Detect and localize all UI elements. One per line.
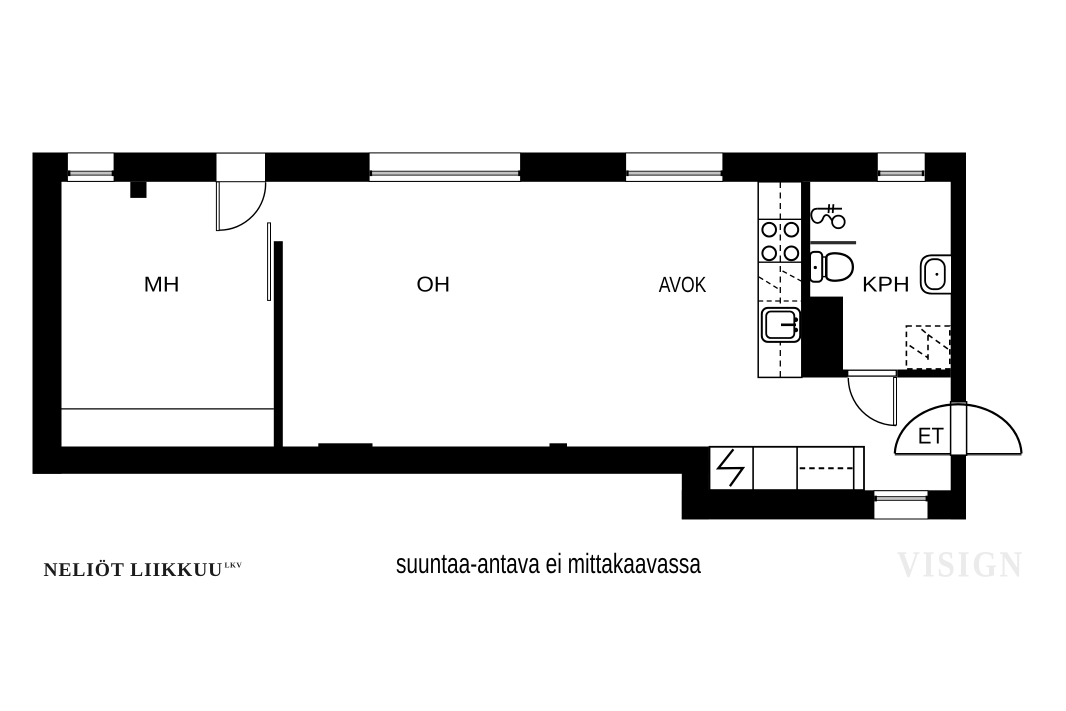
svg-text:OH: OH [416, 273, 450, 297]
svg-text:LKV: LKV [225, 561, 243, 570]
svg-text:AVOK: AVOK [659, 272, 707, 297]
svg-text:NELIÖT LIIKKUU: NELIÖT LIIKKUU [44, 559, 224, 581]
svg-text:KPH: KPH [862, 273, 910, 297]
svg-text:ET: ET [918, 423, 944, 449]
svg-text:suuntaa-antava ei mittakaavass: suuntaa-antava ei mittakaavassa [396, 548, 701, 579]
svg-text:VISIGN: VISIGN [897, 544, 1025, 585]
svg-text:MH: MH [144, 273, 180, 297]
